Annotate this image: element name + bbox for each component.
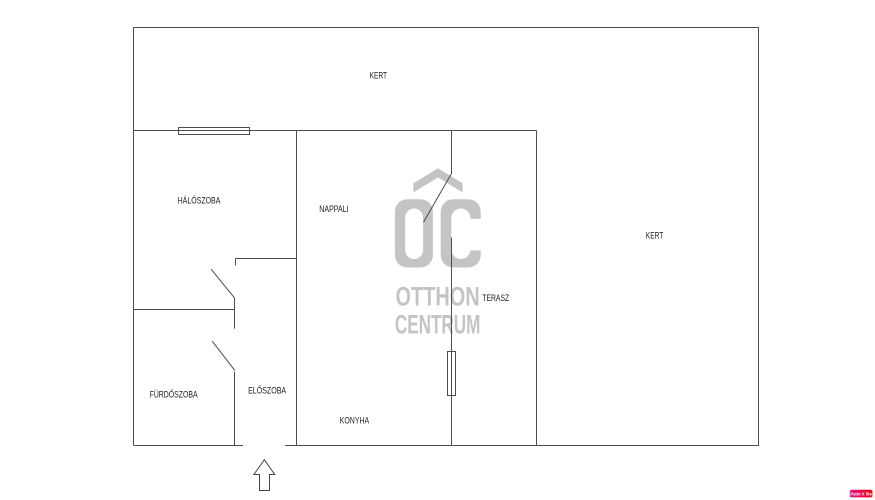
svg-text:KONYHA: KONYHA: [340, 416, 370, 426]
svg-text:CENTRUM: CENTRUM: [395, 310, 481, 340]
svg-text:ELŐSZOBA: ELŐSZOBA: [248, 386, 286, 396]
svg-text:NAPPALI: NAPPALI: [319, 204, 348, 214]
svg-text:OTTHON: OTTHON: [396, 282, 480, 312]
svg-text:KERT: KERT: [646, 231, 664, 241]
svg-text:TERASZ: TERASZ: [482, 293, 509, 303]
svg-text:HÁLÓSZOBA: HÁLÓSZOBA: [178, 195, 221, 205]
svg-text:Paint X lite: Paint X lite: [850, 491, 872, 496]
svg-text:FÜRDŐSZOBA: FÜRDŐSZOBA: [150, 389, 198, 399]
svg-text:KERT: KERT: [370, 70, 388, 80]
